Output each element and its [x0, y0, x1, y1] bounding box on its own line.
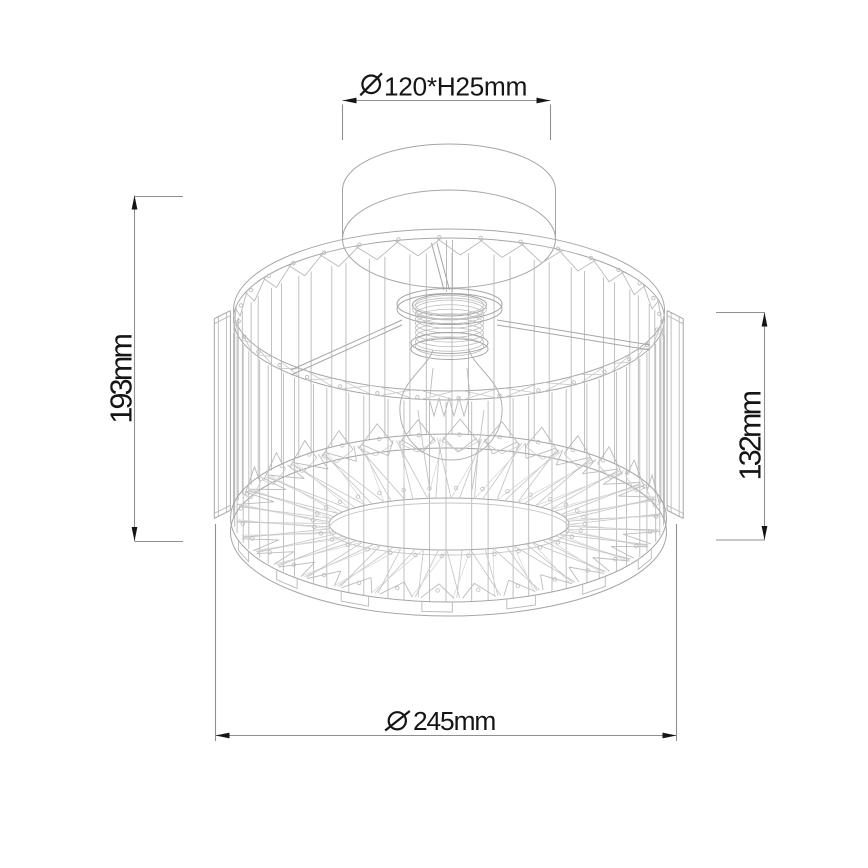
svg-text:193mm: 193mm — [104, 335, 138, 424]
svg-text:132mm: 132mm — [733, 391, 767, 480]
svg-text:120*H25mm: 120*H25mm — [384, 71, 527, 101]
svg-text:245mm: 245mm — [413, 706, 495, 736]
